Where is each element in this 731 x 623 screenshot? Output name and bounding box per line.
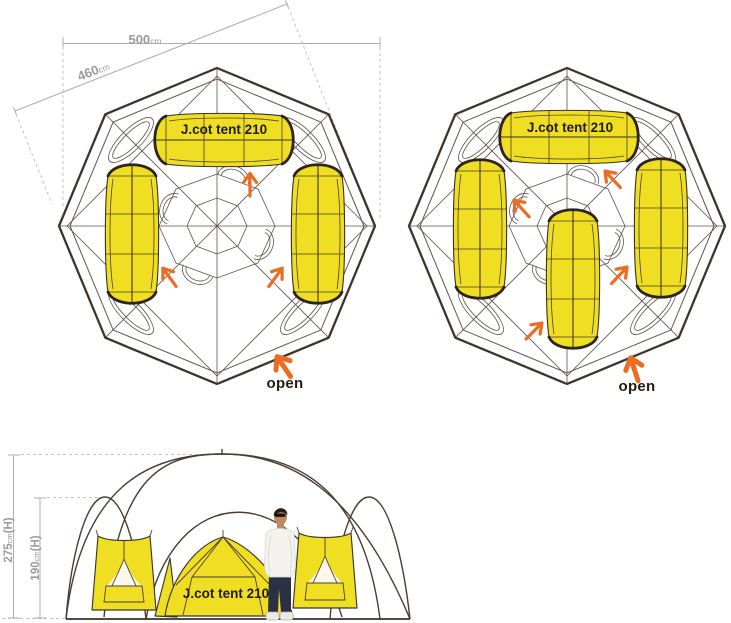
cot-tent-label: J.cot tent 210 [181, 122, 267, 137]
right-box-tent [293, 527, 357, 608]
direction-arrow-icon [607, 263, 632, 288]
cot-tent-left [453, 160, 506, 299]
direction-arrow-icon [264, 264, 288, 290]
person-sunglasses [275, 514, 286, 517]
open-label: open [266, 375, 303, 392]
left-box-tent [92, 530, 156, 610]
direction-arrow-icon [158, 264, 182, 290]
direction-arrow-icon [521, 318, 546, 343]
top-view-diagram-open: J.cot tent 210 open [409, 68, 725, 395]
dimension-190cm-label: 190cm(H) [30, 535, 42, 580]
cot-tent-label: J.cot tent 210 [183, 586, 269, 601]
elevation-tents: J.cot tent 210 [92, 527, 357, 617]
cot-tent-left [105, 165, 158, 304]
top-view-diagram-closed: 500cm 460cm J.cot tent 210 open [14, 0, 381, 392]
cot-tent-label: J.cot tent 210 [527, 120, 613, 135]
cot-tent-right [634, 159, 687, 298]
direction-arrow-icon [600, 167, 625, 192]
cot-tent-top [500, 110, 639, 163]
tent-diagram-page: 500cm 460cm J.cot tent 210 open J.cot te… [0, 0, 731, 623]
dimension-500cm-label: 500cm [128, 32, 161, 47]
cot-tent-right [291, 165, 344, 304]
front-elevation-diagram: 275cm(H) 190cm(H) [2, 449, 410, 620]
dimension-275cm-label: 275cm(H) [3, 517, 15, 562]
open-label: open [618, 378, 655, 395]
cot-tent-center [546, 210, 599, 349]
